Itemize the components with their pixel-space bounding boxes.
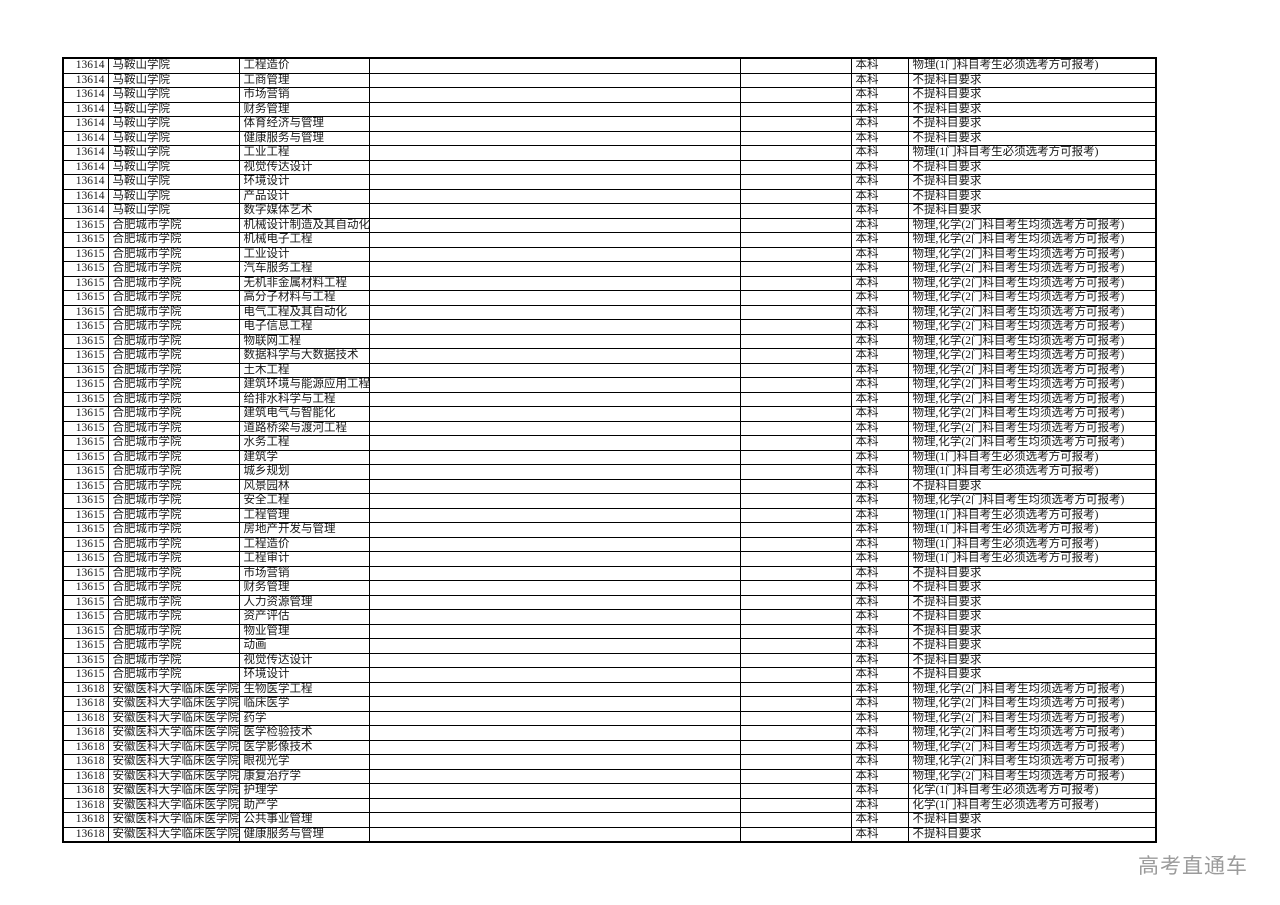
cell-requirement: 物理,化学(2门科目考生均须选考方可报考)	[908, 349, 1156, 364]
cell-level: 本科	[851, 73, 908, 88]
cell-school: 合肥城市学院	[108, 305, 239, 320]
cell-major: 医学检验技术	[239, 726, 369, 741]
table-body: 13614马鞍山学院工程造价本科物理(1门科目考生必须选考方可报考)13614马…	[63, 58, 1156, 842]
cell-level: 本科	[851, 305, 908, 320]
cell-blank1	[369, 189, 740, 204]
cell-school: 合肥城市学院	[108, 349, 239, 364]
cell-requirement: 物理,化学(2门科目考生均须选考方可报考)	[908, 740, 1156, 755]
table-row: 13615合肥城市学院房地产开发与管理本科物理(1门科目考生必须选考方可报考)	[63, 523, 1156, 538]
cell-requirement: 物理,化学(2门科目考生均须选考方可报考)	[908, 363, 1156, 378]
cell-school: 安徽医科大学临床医学院	[108, 798, 239, 813]
cell-requirement: 物理,化学(2门科目考生均须选考方可报考)	[908, 755, 1156, 770]
cell-requirement: 物理,化学(2门科目考生均须选考方可报考)	[908, 262, 1156, 277]
cell-major: 给排水科学与工程	[239, 392, 369, 407]
cell-level: 本科	[851, 465, 908, 480]
cell-major: 建筑学	[239, 450, 369, 465]
table-row: 13615合肥城市学院数据科学与大数据技术本科物理,化学(2门科目考生均须选考方…	[63, 349, 1156, 364]
cell-level: 本科	[851, 392, 908, 407]
cell-code: 13615	[63, 566, 108, 581]
table-row: 13618安徽医科大学临床医学院生物医学工程本科物理,化学(2门科目考生均须选考…	[63, 682, 1156, 697]
cell-code: 13618	[63, 740, 108, 755]
cell-code: 13615	[63, 537, 108, 552]
cell-major: 健康服务与管理	[239, 827, 369, 842]
cell-blank2	[740, 58, 851, 73]
cell-blank2	[740, 465, 851, 480]
cell-code: 13618	[63, 827, 108, 842]
table-row: 13614马鞍山学院财务管理本科不提科目要求	[63, 102, 1156, 117]
cell-school: 合肥城市学院	[108, 537, 239, 552]
cell-blank2	[740, 827, 851, 842]
cell-blank1	[369, 131, 740, 146]
cell-requirement: 不提科目要求	[908, 610, 1156, 625]
cell-requirement: 物理(1门科目考生必须选考方可报考)	[908, 552, 1156, 567]
cell-code: 13615	[63, 349, 108, 364]
cell-code: 13615	[63, 276, 108, 291]
table-row: 13615合肥城市学院水务工程本科物理,化学(2门科目考生均须选考方可报考)	[63, 436, 1156, 451]
cell-level: 本科	[851, 711, 908, 726]
cell-blank2	[740, 262, 851, 277]
cell-level: 本科	[851, 233, 908, 248]
cell-level: 本科	[851, 697, 908, 712]
cell-code: 13615	[63, 334, 108, 349]
cell-major: 体育经济与管理	[239, 117, 369, 132]
cell-code: 13618	[63, 711, 108, 726]
cell-code: 13615	[63, 363, 108, 378]
table-row: 13614马鞍山学院数字媒体艺术本科不提科目要求	[63, 204, 1156, 219]
cell-blank1	[369, 740, 740, 755]
cell-level: 本科	[851, 769, 908, 784]
cell-code: 13614	[63, 146, 108, 161]
cell-blank2	[740, 813, 851, 828]
cell-school: 合肥城市学院	[108, 552, 239, 567]
cell-blank2	[740, 523, 851, 538]
table-row: 13615合肥城市学院机械设计制造及其自动化本科物理,化学(2门科目考生均须选考…	[63, 218, 1156, 233]
cell-blank1	[369, 117, 740, 132]
cell-code: 13615	[63, 291, 108, 306]
cell-school: 马鞍山学院	[108, 73, 239, 88]
table-row: 13615合肥城市学院电气工程及其自动化本科物理,化学(2门科目考生均须选考方可…	[63, 305, 1156, 320]
cell-school: 合肥城市学院	[108, 450, 239, 465]
cell-major: 药学	[239, 711, 369, 726]
cell-code: 13615	[63, 421, 108, 436]
cell-school: 合肥城市学院	[108, 595, 239, 610]
cell-requirement: 物理(1门科目考生必须选考方可报考)	[908, 58, 1156, 73]
cell-requirement: 物理(1门科目考生必须选考方可报考)	[908, 523, 1156, 538]
cell-requirement: 不提科目要求	[908, 102, 1156, 117]
cell-blank2	[740, 305, 851, 320]
cell-blank2	[740, 740, 851, 755]
cell-school: 合肥城市学院	[108, 508, 239, 523]
cell-major: 无机非金属材料工程	[239, 276, 369, 291]
cell-school: 安徽医科大学临床医学院	[108, 827, 239, 842]
cell-school: 合肥城市学院	[108, 436, 239, 451]
cell-level: 本科	[851, 58, 908, 73]
table-row: 13615合肥城市学院工程造价本科物理(1门科目考生必须选考方可报考)	[63, 537, 1156, 552]
cell-level: 本科	[851, 407, 908, 422]
cell-school: 合肥城市学院	[108, 581, 239, 596]
cell-level: 本科	[851, 276, 908, 291]
cell-requirement: 物理,化学(2门科目考生均须选考方可报考)	[908, 711, 1156, 726]
cell-level: 本科	[851, 378, 908, 393]
cell-major: 汽车服务工程	[239, 262, 369, 277]
cell-blank2	[740, 189, 851, 204]
cell-school: 合肥城市学院	[108, 276, 239, 291]
cell-blank1	[369, 595, 740, 610]
cell-major: 机械设计制造及其自动化	[239, 218, 369, 233]
cell-school: 马鞍山学院	[108, 58, 239, 73]
cell-code: 13615	[63, 479, 108, 494]
cell-code: 13614	[63, 175, 108, 190]
cell-major: 护理学	[239, 784, 369, 799]
cell-requirement: 物理,化学(2门科目考生均须选考方可报考)	[908, 682, 1156, 697]
cell-school: 安徽医科大学临床医学院	[108, 726, 239, 741]
cell-code: 13615	[63, 450, 108, 465]
cell-major: 水务工程	[239, 436, 369, 451]
cell-requirement: 物理,化学(2门科目考生均须选考方可报考)	[908, 320, 1156, 335]
cell-major: 视觉传达设计	[239, 160, 369, 175]
cell-level: 本科	[851, 131, 908, 146]
watermark-text: 高考直通车	[1138, 850, 1248, 880]
table-row: 13615合肥城市学院工程审计本科物理(1门科目考生必须选考方可报考)	[63, 552, 1156, 567]
table-row: 13614马鞍山学院工程造价本科物理(1门科目考生必须选考方可报考)	[63, 58, 1156, 73]
cell-blank1	[369, 494, 740, 509]
cell-requirement: 物理,化学(2门科目考生均须选考方可报考)	[908, 334, 1156, 349]
cell-school: 马鞍山学院	[108, 146, 239, 161]
cell-school: 安徽医科大学临床医学院	[108, 813, 239, 828]
cell-blank1	[369, 798, 740, 813]
cell-blank1	[369, 784, 740, 799]
cell-blank2	[740, 378, 851, 393]
cell-major: 房地产开发与管理	[239, 523, 369, 538]
cell-blank1	[369, 436, 740, 451]
cell-school: 马鞍山学院	[108, 117, 239, 132]
cell-blank1	[369, 218, 740, 233]
cell-blank2	[740, 711, 851, 726]
cell-blank2	[740, 421, 851, 436]
cell-blank2	[740, 624, 851, 639]
cell-level: 本科	[851, 247, 908, 262]
cell-school: 合肥城市学院	[108, 291, 239, 306]
cell-level: 本科	[851, 740, 908, 755]
cell-major: 健康服务与管理	[239, 131, 369, 146]
cell-blank1	[369, 160, 740, 175]
cell-code: 13614	[63, 160, 108, 175]
cell-school: 合肥城市学院	[108, 653, 239, 668]
cell-requirement: 不提科目要求	[908, 668, 1156, 683]
cell-code: 13614	[63, 204, 108, 219]
cell-school: 马鞍山学院	[108, 160, 239, 175]
cell-major: 生物医学工程	[239, 682, 369, 697]
cell-level: 本科	[851, 160, 908, 175]
cell-blank2	[740, 726, 851, 741]
cell-requirement: 不提科目要求	[908, 73, 1156, 88]
cell-code: 13614	[63, 117, 108, 132]
cell-requirement: 物理,化学(2门科目考生均须选考方可报考)	[908, 276, 1156, 291]
cell-blank1	[369, 769, 740, 784]
cell-requirement: 物理,化学(2门科目考生均须选考方可报考)	[908, 305, 1156, 320]
cell-level: 本科	[851, 88, 908, 103]
cell-blank2	[740, 581, 851, 596]
cell-requirement: 物理,化学(2门科目考生均须选考方可报考)	[908, 218, 1156, 233]
cell-major: 工程审计	[239, 552, 369, 567]
table-row: 13615合肥城市学院建筑学本科物理(1门科目考生必须选考方可报考)	[63, 450, 1156, 465]
cell-code: 13615	[63, 668, 108, 683]
cell-major: 机械电子工程	[239, 233, 369, 248]
cell-requirement: 不提科目要求	[908, 813, 1156, 828]
cell-school: 安徽医科大学临床医学院	[108, 784, 239, 799]
cell-requirement: 物理(1门科目考生必须选考方可报考)	[908, 146, 1156, 161]
table-row: 13615合肥城市学院工程管理本科物理(1门科目考生必须选考方可报考)	[63, 508, 1156, 523]
cell-major: 康复治疗学	[239, 769, 369, 784]
cell-blank2	[740, 508, 851, 523]
cell-school: 合肥城市学院	[108, 233, 239, 248]
cell-code: 13614	[63, 189, 108, 204]
cell-school: 合肥城市学院	[108, 334, 239, 349]
cell-major: 工程造价	[239, 537, 369, 552]
cell-blank1	[369, 102, 740, 117]
table-row: 13614马鞍山学院市场营销本科不提科目要求	[63, 88, 1156, 103]
cell-blank2	[740, 668, 851, 683]
table-row: 13618安徽医科大学临床医学院眼视光学本科物理,化学(2门科目考生均须选考方可…	[63, 755, 1156, 770]
cell-level: 本科	[851, 175, 908, 190]
cell-code: 13614	[63, 131, 108, 146]
table-row: 13618安徽医科大学临床医学院医学检验技术本科物理,化学(2门科目考生均须选考…	[63, 726, 1156, 741]
cell-level: 本科	[851, 479, 908, 494]
cell-blank2	[740, 73, 851, 88]
cell-requirement: 物理(1门科目考生必须选考方可报考)	[908, 537, 1156, 552]
cell-blank2	[740, 653, 851, 668]
table-row: 13614马鞍山学院体育经济与管理本科不提科目要求	[63, 117, 1156, 132]
cell-requirement: 不提科目要求	[908, 88, 1156, 103]
cell-code: 13614	[63, 102, 108, 117]
cell-code: 13615	[63, 465, 108, 480]
cell-major: 城乡规划	[239, 465, 369, 480]
cell-code: 13614	[63, 73, 108, 88]
cell-school: 马鞍山学院	[108, 88, 239, 103]
cell-level: 本科	[851, 102, 908, 117]
cell-blank2	[740, 334, 851, 349]
cell-major: 工业工程	[239, 146, 369, 161]
cell-level: 本科	[851, 755, 908, 770]
cell-blank1	[369, 581, 740, 596]
cell-blank2	[740, 349, 851, 364]
cell-major: 道路桥梁与渡河工程	[239, 421, 369, 436]
cell-school: 安徽医科大学临床医学院	[108, 697, 239, 712]
cell-requirement: 不提科目要求	[908, 117, 1156, 132]
table-row: 13615合肥城市学院市场营销本科不提科目要求	[63, 566, 1156, 581]
cell-level: 本科	[851, 639, 908, 654]
cell-school: 安徽医科大学临床医学院	[108, 711, 239, 726]
cell-code: 13615	[63, 407, 108, 422]
cell-school: 马鞍山学院	[108, 204, 239, 219]
cell-code: 13615	[63, 653, 108, 668]
cell-blank2	[740, 552, 851, 567]
cell-code: 13615	[63, 552, 108, 567]
cell-major: 数据科学与大数据技术	[239, 349, 369, 364]
cell-school: 合肥城市学院	[108, 247, 239, 262]
cell-school: 合肥城市学院	[108, 566, 239, 581]
cell-blank2	[740, 204, 851, 219]
table-row: 13615合肥城市学院环境设计本科不提科目要求	[63, 668, 1156, 683]
table-row: 13615合肥城市学院建筑环境与能源应用工程本科物理,化学(2门科目考生均须选考…	[63, 378, 1156, 393]
cell-blank2	[740, 436, 851, 451]
table-row: 13618安徽医科大学临床医学院康复治疗学本科物理,化学(2门科目考生均须选考方…	[63, 769, 1156, 784]
cell-blank2	[740, 218, 851, 233]
cell-blank1	[369, 479, 740, 494]
cell-requirement: 不提科目要求	[908, 624, 1156, 639]
cell-level: 本科	[851, 595, 908, 610]
cell-blank1	[369, 276, 740, 291]
cell-requirement: 不提科目要求	[908, 160, 1156, 175]
cell-requirement: 物理,化学(2门科目考生均须选考方可报考)	[908, 436, 1156, 451]
cell-major: 产品设计	[239, 189, 369, 204]
cell-school: 合肥城市学院	[108, 479, 239, 494]
cell-level: 本科	[851, 523, 908, 538]
cell-blank1	[369, 624, 740, 639]
table-row: 13615合肥城市学院城乡规划本科物理(1门科目考生必须选考方可报考)	[63, 465, 1156, 480]
table-row: 13618安徽医科大学临床医学院药学本科物理,化学(2门科目考生均须选考方可报考…	[63, 711, 1156, 726]
cell-school: 合肥城市学院	[108, 624, 239, 639]
cell-blank1	[369, 610, 740, 625]
table-row: 13614马鞍山学院工商管理本科不提科目要求	[63, 73, 1156, 88]
table-row: 13615合肥城市学院汽车服务工程本科物理,化学(2门科目考生均须选考方可报考)	[63, 262, 1156, 277]
cell-blank1	[369, 247, 740, 262]
cell-school: 合肥城市学院	[108, 494, 239, 509]
table-row: 13618安徽医科大学临床医学院健康服务与管理本科不提科目要求	[63, 827, 1156, 842]
cell-blank2	[740, 697, 851, 712]
cell-school: 马鞍山学院	[108, 189, 239, 204]
table-row: 13615合肥城市学院动画本科不提科目要求	[63, 639, 1156, 654]
cell-blank2	[740, 392, 851, 407]
cell-school: 合肥城市学院	[108, 668, 239, 683]
cell-code: 13614	[63, 58, 108, 73]
cell-blank1	[369, 421, 740, 436]
cell-blank1	[369, 73, 740, 88]
cell-code: 13618	[63, 784, 108, 799]
cell-major: 环境设计	[239, 175, 369, 190]
cell-blank1	[369, 639, 740, 654]
cell-school: 合肥城市学院	[108, 262, 239, 277]
cell-school: 合肥城市学院	[108, 610, 239, 625]
cell-requirement: 物理,化学(2门科目考生均须选考方可报考)	[908, 247, 1156, 262]
cell-code: 13615	[63, 595, 108, 610]
table-row: 13615合肥城市学院机械电子工程本科物理,化学(2门科目考生均须选考方可报考)	[63, 233, 1156, 248]
cell-requirement: 物理,化学(2门科目考生均须选考方可报考)	[908, 233, 1156, 248]
cell-blank2	[740, 88, 851, 103]
cell-blank2	[740, 769, 851, 784]
cell-blank1	[369, 682, 740, 697]
cell-requirement: 不提科目要求	[908, 204, 1156, 219]
cell-major: 动画	[239, 639, 369, 654]
cell-code: 13615	[63, 494, 108, 509]
cell-major: 物联网工程	[239, 334, 369, 349]
table-row: 13615合肥城市学院财务管理本科不提科目要求	[63, 581, 1156, 596]
table-row: 13614马鞍山学院视觉传达设计本科不提科目要求	[63, 160, 1156, 175]
cell-blank1	[369, 668, 740, 683]
cell-school: 合肥城市学院	[108, 218, 239, 233]
cell-major: 市场营销	[239, 566, 369, 581]
cell-major: 视觉传达设计	[239, 653, 369, 668]
cell-code: 13618	[63, 813, 108, 828]
cell-requirement: 物理,化学(2门科目考生均须选考方可报考)	[908, 697, 1156, 712]
cell-blank1	[369, 363, 740, 378]
cell-blank1	[369, 711, 740, 726]
cell-blank2	[740, 450, 851, 465]
cell-major: 数字媒体艺术	[239, 204, 369, 219]
cell-blank1	[369, 262, 740, 277]
cell-blank2	[740, 407, 851, 422]
table-row: 13615合肥城市学院道路桥梁与渡河工程本科物理,化学(2门科目考生均须选考方可…	[63, 421, 1156, 436]
cell-blank2	[740, 160, 851, 175]
cell-school: 合肥城市学院	[108, 378, 239, 393]
cell-blank2	[740, 479, 851, 494]
cell-requirement: 物理,化学(2门科目考生均须选考方可报考)	[908, 378, 1156, 393]
cell-blank1	[369, 523, 740, 538]
cell-major: 建筑环境与能源应用工程	[239, 378, 369, 393]
cell-level: 本科	[851, 624, 908, 639]
cell-major: 眼视光学	[239, 755, 369, 770]
cell-level: 本科	[851, 668, 908, 683]
cell-requirement: 不提科目要求	[908, 639, 1156, 654]
cell-level: 本科	[851, 537, 908, 552]
cell-code: 13615	[63, 392, 108, 407]
cell-major: 人力资源管理	[239, 595, 369, 610]
cell-major: 资产评估	[239, 610, 369, 625]
cell-blank2	[740, 117, 851, 132]
cell-major: 电子信息工程	[239, 320, 369, 335]
cell-requirement: 不提科目要求	[908, 653, 1156, 668]
cell-major: 高分子材料与工程	[239, 291, 369, 306]
table-row: 13615合肥城市学院电子信息工程本科物理,化学(2门科目考生均须选考方可报考)	[63, 320, 1156, 335]
cell-major: 财务管理	[239, 581, 369, 596]
table-row: 13618安徽医科大学临床医学院护理学本科化学(1门科目考生必须选考方可报考)	[63, 784, 1156, 799]
cell-blank2	[740, 566, 851, 581]
cell-requirement: 化学(1门科目考生必须选考方可报考)	[908, 784, 1156, 799]
cell-school: 安徽医科大学临床医学院	[108, 755, 239, 770]
table-row: 13618安徽医科大学临床医学院公共事业管理本科不提科目要求	[63, 813, 1156, 828]
cell-blank2	[740, 494, 851, 509]
cell-blank1	[369, 813, 740, 828]
cell-level: 本科	[851, 610, 908, 625]
cell-major: 公共事业管理	[239, 813, 369, 828]
cell-code: 13615	[63, 523, 108, 538]
cell-major: 安全工程	[239, 494, 369, 509]
table-row: 13615合肥城市学院无机非金属材料工程本科物理,化学(2门科目考生均须选考方可…	[63, 276, 1156, 291]
cell-blank1	[369, 58, 740, 73]
cell-requirement: 物理(1门科目考生必须选考方可报考)	[908, 465, 1156, 480]
cell-requirement: 物理,化学(2门科目考生均须选考方可报考)	[908, 421, 1156, 436]
cell-school: 合肥城市学院	[108, 465, 239, 480]
admission-table: 13614马鞍山学院工程造价本科物理(1门科目考生必须选考方可报考)13614马…	[62, 57, 1157, 843]
cell-code: 13615	[63, 624, 108, 639]
cell-code: 13615	[63, 610, 108, 625]
cell-blank1	[369, 392, 740, 407]
cell-requirement: 物理(1门科目考生必须选考方可报考)	[908, 508, 1156, 523]
cell-requirement: 不提科目要求	[908, 479, 1156, 494]
cell-blank1	[369, 450, 740, 465]
cell-level: 本科	[851, 726, 908, 741]
table-row: 13614马鞍山学院环境设计本科不提科目要求	[63, 175, 1156, 190]
cell-blank1	[369, 697, 740, 712]
cell-requirement: 不提科目要求	[908, 189, 1156, 204]
cell-blank2	[740, 537, 851, 552]
cell-code: 13615	[63, 436, 108, 451]
cell-level: 本科	[851, 349, 908, 364]
cell-level: 本科	[851, 827, 908, 842]
cell-major: 工程造价	[239, 58, 369, 73]
cell-blank2	[740, 320, 851, 335]
cell-requirement: 物理,化学(2门科目考生均须选考方可报考)	[908, 392, 1156, 407]
